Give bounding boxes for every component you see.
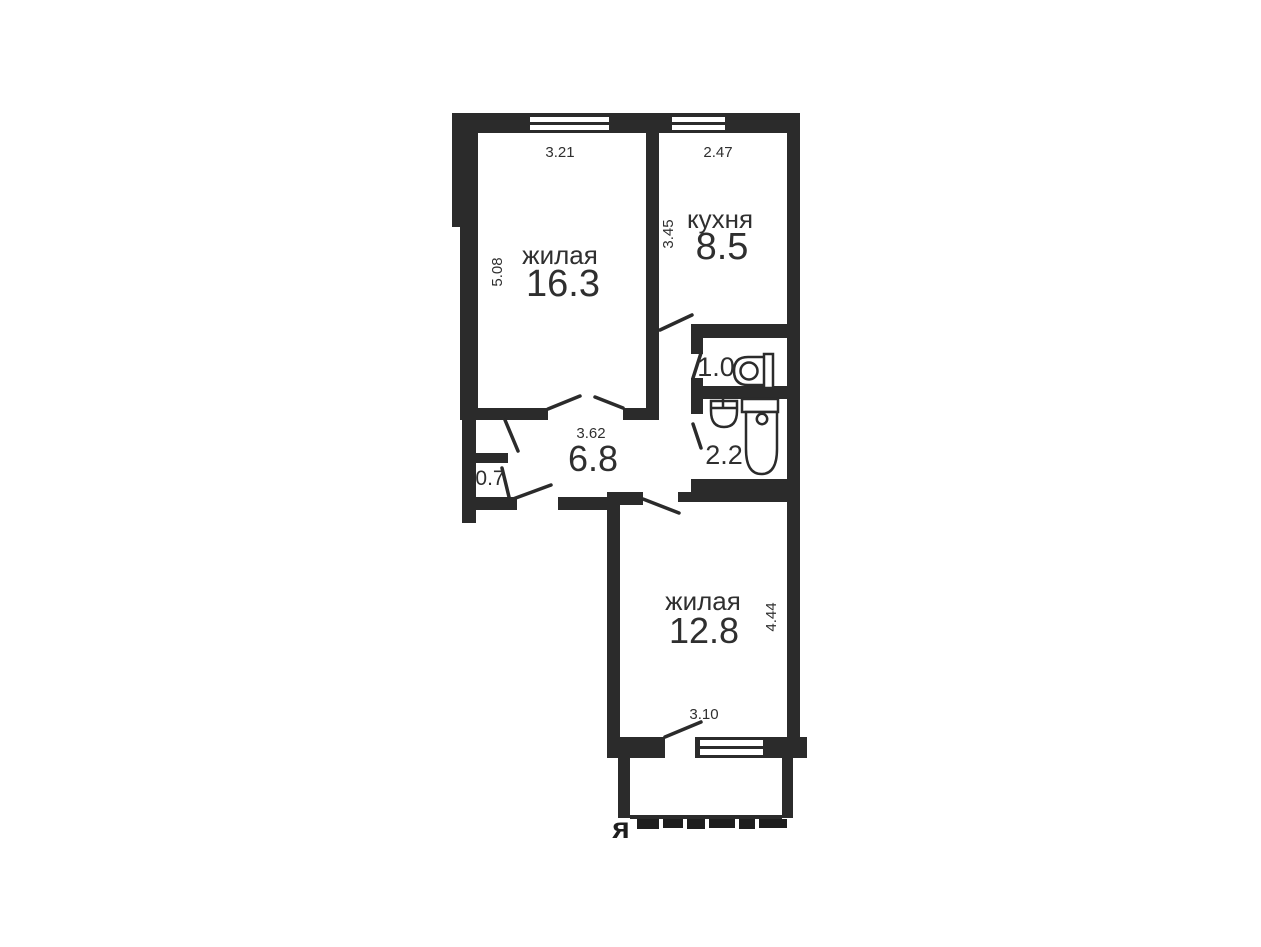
dim-living1-side: 5.08 (489, 257, 506, 286)
watermark-blob (709, 819, 735, 828)
area-value-bathroom: 2.2 (705, 440, 743, 470)
balcony-rail-front (630, 815, 782, 819)
window-glass (700, 740, 763, 746)
wall-segment (678, 492, 691, 502)
wall-segment (460, 408, 548, 420)
floor-plan-canvas: 3.21 5.08 жилая 16.3 2.47 3.45 кухня 8.5… (0, 0, 1261, 947)
wall-segment (646, 133, 659, 420)
toilet-tank (742, 399, 778, 412)
door-swing-living1-left (548, 396, 580, 409)
dim-living2-bottom: 3.10 (689, 706, 718, 723)
watermark-blob (759, 819, 787, 828)
door-swing-kitchen (660, 315, 692, 330)
door-swing-balcony (665, 722, 701, 737)
area-value-hallway: 6.8 (568, 438, 618, 479)
wall-segment (611, 113, 670, 133)
door-swings (502, 315, 701, 737)
window-symbol-living1 (528, 113, 611, 133)
window-glass (672, 125, 725, 130)
watermark-blob (739, 819, 755, 829)
wall-segment (607, 737, 665, 758)
wall-segment (691, 324, 787, 338)
door-swing-entrance (513, 485, 551, 499)
door-swing-living1-right (595, 397, 623, 408)
watermark-blob (663, 819, 683, 828)
window-glass (700, 749, 763, 755)
watermark-blob (637, 819, 659, 829)
wall-segment (691, 324, 703, 354)
balcony-rail-right (782, 758, 793, 818)
balcony-rail-left (618, 758, 630, 818)
door-swing-closet-upper (505, 420, 518, 451)
watermark-blob (687, 819, 705, 829)
toilet-icon (742, 399, 778, 474)
dim-kitchen-top: 2.47 (703, 144, 732, 161)
wall-segment (460, 227, 478, 420)
wall-segment (768, 737, 807, 758)
area-value-living2: 12.8 (669, 610, 739, 651)
door-swing-living2 (643, 499, 679, 513)
floor-plan: 3.21 5.08 жилая 16.3 2.47 3.45 кухня 8.5… (0, 0, 1261, 947)
wall-segment (691, 479, 800, 502)
wall-segment (787, 113, 800, 758)
wall-segment (462, 497, 517, 510)
window-symbol-kitchen (670, 113, 727, 133)
dim-living1-top: 3.21 (545, 144, 574, 161)
toilet-flush-button (757, 414, 767, 424)
water-heater-icon (734, 354, 773, 388)
window-glass (530, 125, 609, 130)
door-swing-bathroom (693, 424, 701, 448)
window-glass (530, 117, 609, 122)
balcony-outline (618, 758, 793, 819)
wall-segment (452, 113, 478, 227)
watermark-clipped-text (637, 819, 787, 829)
dim-living2-side: 4.44 (763, 602, 780, 631)
labels: 3.21 5.08 жилая 16.3 2.47 3.45 кухня 8.5… (475, 144, 780, 723)
wall-segment (607, 497, 620, 737)
area-value-closet: 0.7 (475, 467, 504, 490)
water-heater-dial (741, 363, 758, 380)
watermark-letter: я (611, 812, 630, 845)
area-value-wc: 1.0 (697, 352, 735, 382)
window-symbol-balcony (695, 737, 768, 758)
wall-segment (474, 453, 508, 463)
window-glass (672, 117, 725, 122)
area-value-kitchen: 8.5 (696, 226, 749, 268)
dim-kitchen-side: 3.45 (660, 219, 677, 248)
water-heater-panel (764, 354, 773, 388)
area-value-living1: 16.3 (526, 263, 600, 305)
